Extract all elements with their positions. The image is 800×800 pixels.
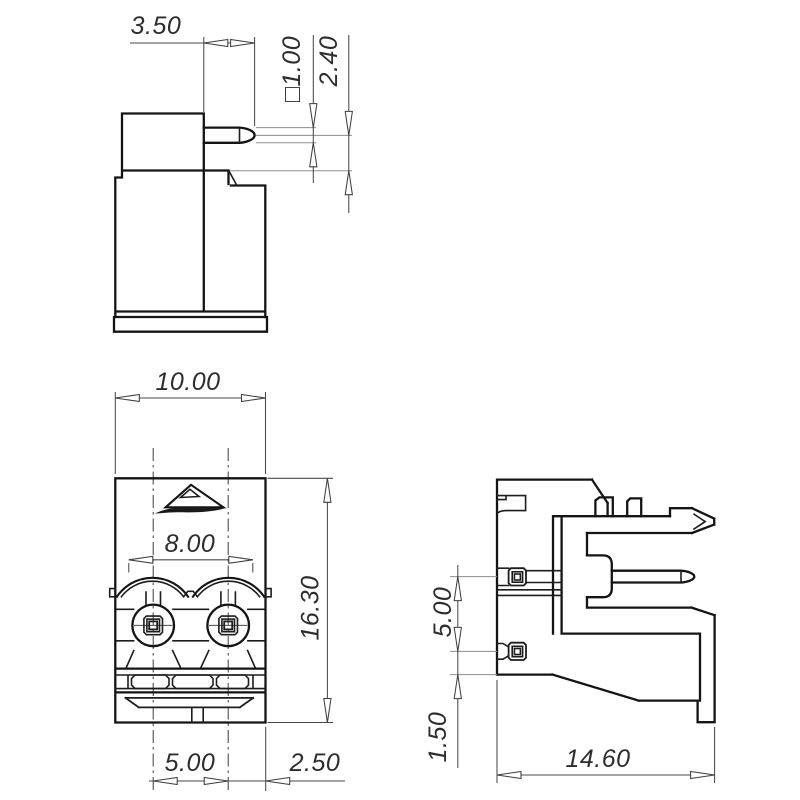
dim-800-arrow-right [229,556,253,563]
drawing-sheet: 3.50 □1.00 2.40 [0,0,800,800]
pin-reference-lines [230,128,353,171]
dim-1630-arrow-top [324,478,331,502]
right-side-view [497,480,715,723]
dim-350-arrow-right [231,40,255,47]
dim-240-arrow-top [345,111,352,135]
dim-500-arrow-left [153,778,177,785]
bottom-center-peg [192,707,203,722]
top-prong-left [595,497,612,516]
right-body-outline [497,480,715,723]
dim-label-pin-square: □1.00 [278,36,306,102]
front-view [110,448,271,791]
dim-label-edge-to-pin: 2.50 [289,749,341,777]
lower-pin-cross-section [497,643,526,660]
dim-350-extension-lines [204,37,255,126]
upper-body-flange [114,317,267,332]
plug-tip-chevron [694,514,705,529]
dim-label-body-width: 10.00 [155,368,220,396]
bottom-trapezoid [126,698,254,708]
slot-center [173,675,214,689]
scallop-side-tabs [110,589,271,597]
upper-pin-square-inner [514,574,520,580]
dim-800-arrow-left [129,556,153,563]
dim-350-arrow-left [204,40,228,47]
dim-800-extension-ticks [129,563,253,573]
technical-drawing-canvas: 3.50 □1.00 2.40 [0,0,800,800]
front-body-outline [115,478,265,722]
dim-label-pin-to-bottom: 1.50 [424,712,452,763]
front-view-dimensions: 10.00 8.00 16.30 5.00 2.50 [115,368,345,791]
dim-1000-arrow-right [242,395,266,402]
dim-1460-arrow-right [691,772,715,779]
lower-pin-square-inner [514,649,520,655]
slot-left [132,675,170,689]
molded-triangle-symbol [155,485,225,514]
dim-100-arrow-top [310,104,317,128]
dim-150-arrow [454,675,461,699]
shroud-top-wall [587,508,714,533]
dim-label-pin-center-offset: 2.40 [315,36,343,88]
dim-1630-arrow-bottom [324,699,331,723]
scallop-outer-arcs [117,578,264,597]
dim-label-body-height: 16.30 [297,575,325,640]
dim-label-opening-span: 8.00 [165,530,216,558]
dim-label-body-depth: 14.60 [565,745,630,773]
dim-1460-arrow-left [497,772,521,779]
upper-body-notch-chamfer [230,172,237,185]
dim-250-arrow [266,778,290,785]
slot-rail-lines [115,675,265,689]
right-view-pin [612,571,695,583]
housing-web-lines [115,592,265,669]
dim-label-pin-spacing: 5.00 [429,587,457,638]
side-view-upper [114,114,352,332]
solder-pin [204,128,255,143]
slot-right [217,675,249,689]
dim-label-pin-pitch: 5.00 [165,749,216,777]
dim-100-arrow-bottom [310,143,317,167]
dim-1000-arrow-left [115,395,139,402]
latch-notch [497,496,526,514]
top-prong-right [627,498,641,516]
lower-pin-links [497,644,509,660]
dim-500-arrow-right [204,778,228,785]
dim-label-pin-protrusion: 3.50 [131,12,182,40]
scallop-inner-arcs [121,581,259,596]
dim-1000-extension-lines [115,392,265,474]
pin-seat-block [587,555,612,597]
right-side-view-dimensions: 5.00 1.50 14.60 [424,565,715,783]
upper-body-outline [115,114,265,318]
dim-240-arrow-bottom [345,171,352,195]
